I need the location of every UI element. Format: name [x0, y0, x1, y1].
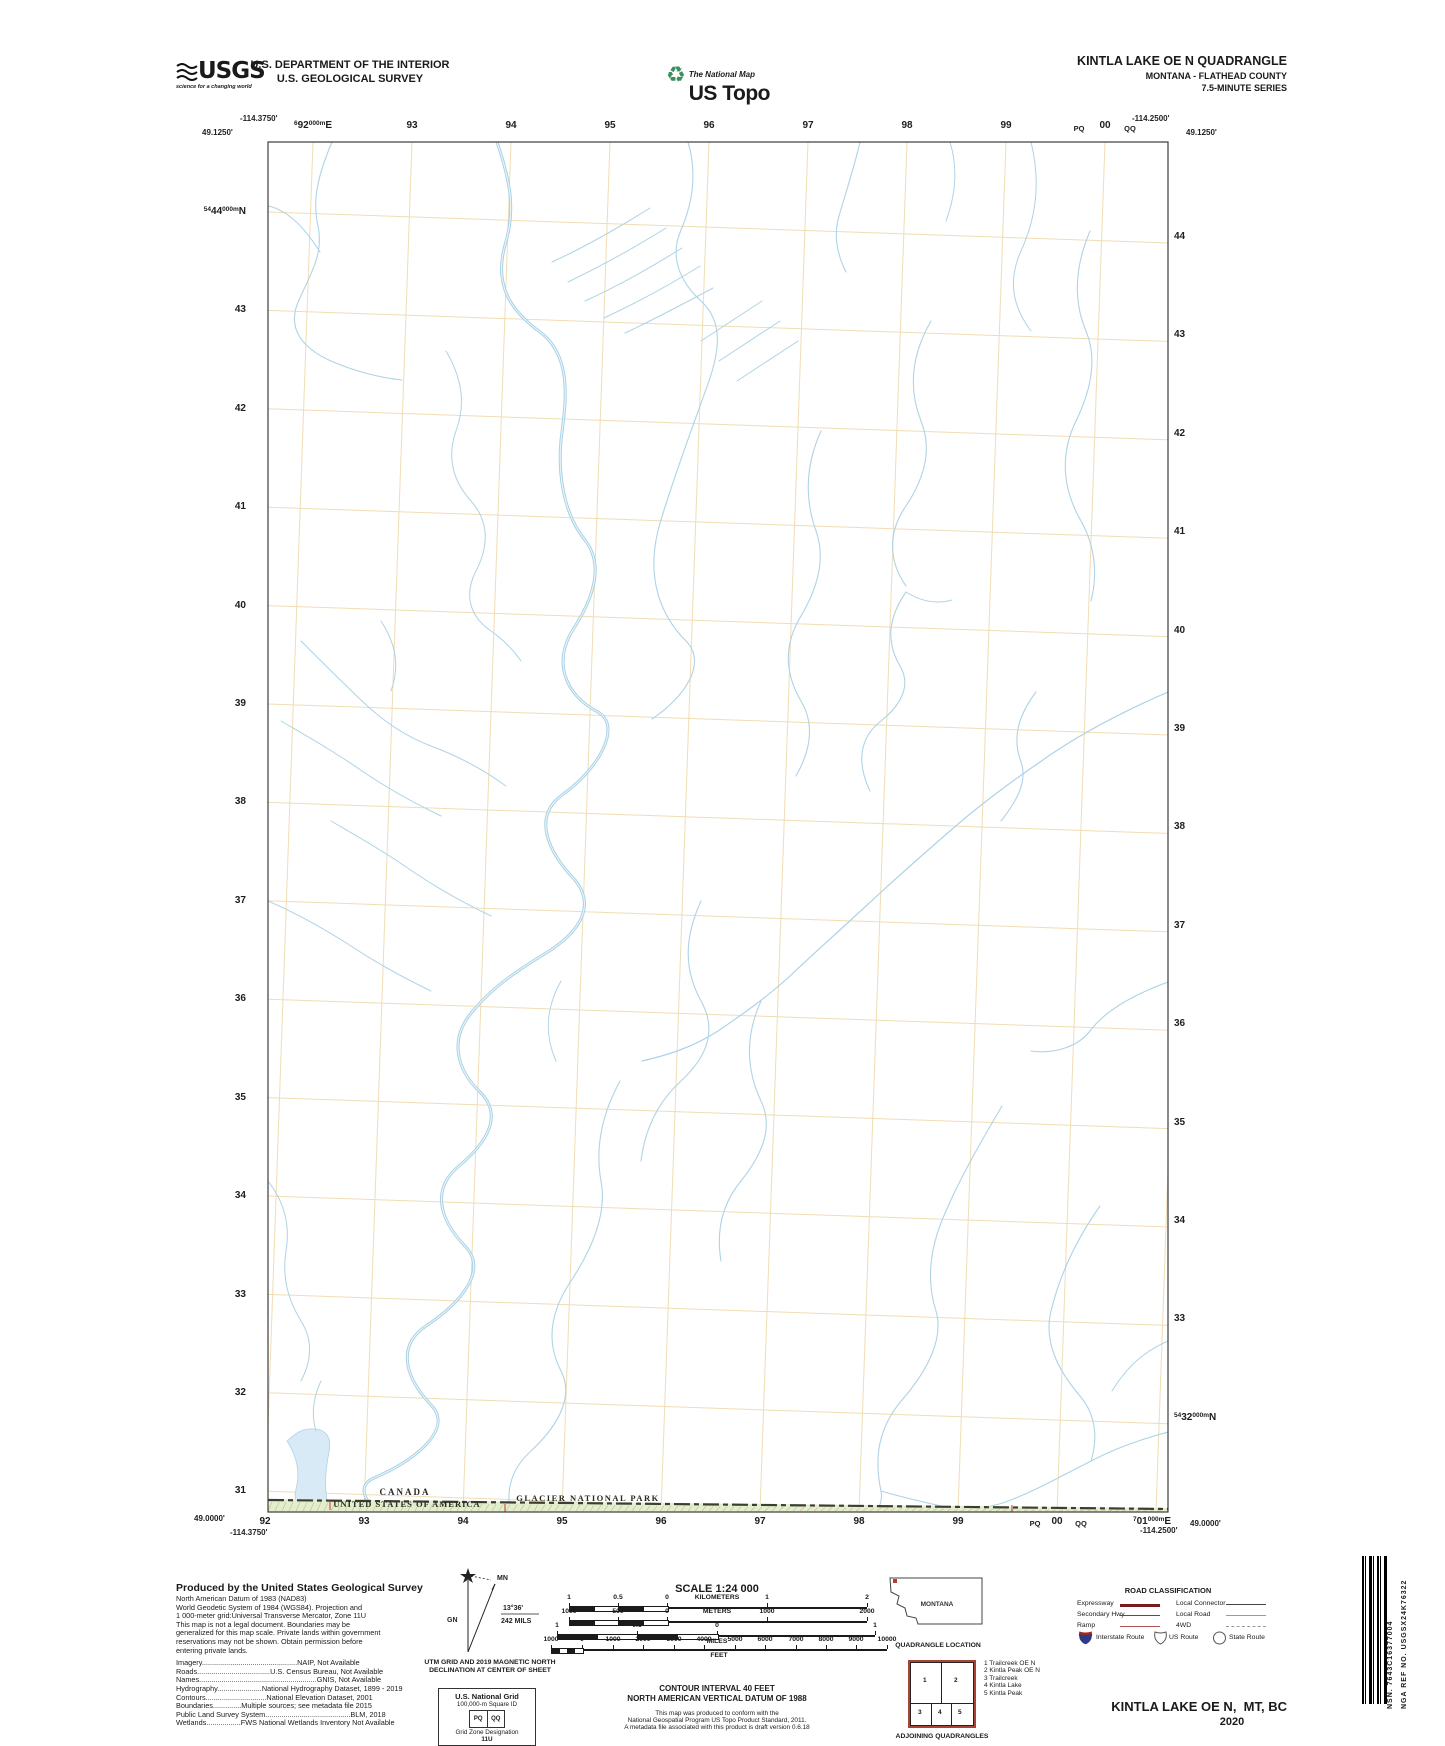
- scale-tick: [875, 1631, 876, 1635]
- svg-text:242 MILS: 242 MILS: [501, 1618, 532, 1625]
- grid-label-bottom: 94: [457, 1516, 468, 1527]
- scale-tick-label: 6000: [757, 1636, 772, 1643]
- scale-tick-label: 0.5: [632, 1622, 641, 1629]
- usng-box: U.S. National Grid 100,000-m Square ID P…: [438, 1688, 536, 1746]
- utm-grid-line-h: [268, 802, 1168, 833]
- utm-grid-line-h: [268, 901, 1168, 932]
- grid-label-right: 39: [1174, 723, 1185, 734]
- stream-path: [719, 1001, 766, 1261]
- stream-path: [1031, 982, 1168, 1052]
- credit-line: Wetlands.................FWS National We…: [176, 1719, 441, 1728]
- product-note-line: This map was produced to conform with th…: [655, 1710, 779, 1717]
- utm-grid-line-v: [364, 142, 412, 1512]
- boundary-monument-number: 6: [260, 1503, 265, 1513]
- road-line-sample: [1226, 1604, 1266, 1605]
- corner-bl-lon: -114.3750': [230, 1528, 268, 1537]
- utm-grid-line-v: [562, 142, 610, 1512]
- scale-bar-segment: [643, 1620, 670, 1626]
- utm-grid-line-h: [268, 310, 1168, 341]
- interstate-shield-icon: [1078, 1630, 1093, 1645]
- scale-tick-label: 0: [665, 1594, 669, 1601]
- route-type-label: Interstate Route: [1096, 1634, 1144, 1641]
- stream-path: [906, 592, 952, 602]
- scale-tick: [826, 1645, 827, 1649]
- utm-grid-line-v: [661, 142, 709, 1512]
- declination-caption1: UTM GRID AND 2019 MAGNETIC NORTH: [424, 1659, 555, 1666]
- stream-path: [552, 208, 650, 262]
- corner-tr-lon: -114.2500': [1132, 114, 1170, 123]
- utm-grid-line-v: [1057, 142, 1105, 1512]
- utm-grid-line-h: [268, 1098, 1168, 1129]
- product-note-line: A metadata file associated with this pro…: [624, 1724, 809, 1731]
- adjoining-quads-diagram: 1 2 3 4 5: [908, 1660, 976, 1728]
- stream-path: [701, 301, 762, 341]
- usng-square-qq: QQ: [488, 1711, 505, 1727]
- adjoining-cell-3: 3: [918, 1709, 922, 1716]
- stream-path: [836, 142, 860, 272]
- glacier-national-park-label: GLACIER NATIONAL PARK: [516, 1493, 660, 1503]
- stream-path: [893, 321, 932, 586]
- state-locator-map: MONTANA: [885, 1566, 991, 1634]
- adjoining-quad-name: 5 Kintla Peak: [984, 1690, 1040, 1697]
- road-type-label: Ramp: [1077, 1622, 1095, 1629]
- grid-label-bottom: 98: [853, 1516, 864, 1527]
- stream-path: [1049, 1206, 1100, 1461]
- scale-tick: [667, 1617, 668, 1621]
- scale-tick-label: 10000: [878, 1636, 897, 1643]
- quadrangle-location-caption: QUADRANGLE LOCATION: [895, 1642, 981, 1649]
- scale-tick-label: 1000: [759, 1608, 774, 1615]
- scale-tick-label: 500: [612, 1608, 623, 1615]
- grid-label-top: 96: [703, 120, 714, 131]
- scale-tick: [569, 1603, 570, 1607]
- grid-label-left: 41: [235, 501, 246, 512]
- grid-label-left: 31: [235, 1485, 246, 1496]
- stream-path: [446, 351, 521, 661]
- scale-tick: [613, 1645, 614, 1649]
- grid-label-right: 41: [1174, 526, 1185, 537]
- scale-tick: [557, 1631, 558, 1635]
- usng-gzd-label: Grid Zone Designation: [439, 1729, 535, 1736]
- grid-label-left: 38: [235, 796, 246, 807]
- grid-label-right: 43: [1174, 329, 1185, 340]
- corner-br-lat: 49.0000': [1190, 1519, 1221, 1528]
- scale-tick-label: 0: [715, 1622, 719, 1629]
- scale-tick: [735, 1645, 736, 1649]
- scale-tick: [667, 1603, 668, 1607]
- road-line-sample: [1120, 1626, 1160, 1627]
- svg-text:GN: GN: [447, 1617, 458, 1624]
- scale-tick: [867, 1617, 868, 1621]
- grid-label-right: 5432000mN: [1174, 1412, 1216, 1423]
- scale-unit-label: FEET: [710, 1652, 727, 1659]
- road-line-sample: [1120, 1604, 1160, 1607]
- scale-tick-label: 8000: [818, 1636, 833, 1643]
- svg-text:13°36': 13°36': [503, 1604, 523, 1612]
- stream-path: [364, 142, 608, 1513]
- usng-square-diagram: PQ QQ: [469, 1710, 505, 1728]
- scale-tick-label: 1: [873, 1622, 877, 1629]
- scale-tick-label: 1000: [605, 1636, 620, 1643]
- declination-diagram: MN GN 13°36' 242 MILS: [435, 1560, 555, 1656]
- scale-tick: [856, 1645, 857, 1649]
- grid-label-right: 34: [1174, 1215, 1185, 1226]
- scale-tick-label: 1000: [543, 1636, 558, 1643]
- grid-label-top: 98: [901, 120, 912, 131]
- utm-grid-line-h: [268, 1393, 1168, 1424]
- scale-tick: [796, 1645, 797, 1649]
- grid-label-top: PQ: [1074, 124, 1085, 133]
- corner-tl-lon: -114.3750': [240, 114, 278, 123]
- nga-ref-number: NGA REF NO. USGSX24K76322: [1401, 1580, 1408, 1709]
- grid-label-left: 37: [235, 895, 246, 906]
- grid-label-left: 33: [235, 1289, 246, 1300]
- usgs-topo-sheet: { "header": { "usgs": {"brand": "USGS", …: [0, 0, 1445, 1746]
- credits-lines: North American Datum of 1983 (NAD83)Worl…: [176, 1595, 441, 1728]
- grid-label-left: 42: [235, 403, 246, 414]
- road-type-label: Expressway: [1077, 1600, 1114, 1607]
- scale-tick: [704, 1645, 705, 1649]
- scale-tick: [674, 1645, 675, 1649]
- vertical-datum: NORTH AMERICAN VERTICAL DATUM OF 1988: [627, 1694, 806, 1703]
- product-note-line: National Geospatial Program US Topo Prod…: [628, 1717, 807, 1724]
- grid-label-bottom: 701000mE: [1133, 1516, 1171, 1527]
- stream-path: [625, 288, 713, 333]
- adjoining-quad-name: 3 Trailcreek: [984, 1675, 1040, 1682]
- scale-tick: [887, 1645, 888, 1649]
- scale-tick-label: 1: [765, 1594, 769, 1601]
- scale-bar-segment: [594, 1620, 621, 1626]
- grid-label-right: 37: [1174, 920, 1185, 931]
- grid-label-left: 32: [235, 1387, 246, 1398]
- grid-label-bottom: 95: [556, 1516, 567, 1527]
- corner-bl-lat: 49.0000': [194, 1514, 225, 1523]
- scale-tick-label: 4000: [696, 1636, 711, 1643]
- stream-path: [294, 142, 402, 380]
- road-type-label: Local Connector: [1176, 1600, 1226, 1607]
- scale-tick: [767, 1617, 768, 1621]
- scale-tick-label: 1: [555, 1622, 559, 1629]
- grid-label-top: 692000mE: [294, 120, 332, 131]
- stream-path: [568, 228, 666, 282]
- grid-label-top: QQ: [1124, 124, 1136, 133]
- grid-label-top: 97: [802, 120, 813, 131]
- grid-label-bottom: 00: [1051, 1516, 1062, 1527]
- stream-path: [652, 142, 717, 719]
- scale-tick: [637, 1631, 638, 1635]
- road-line-sample: [1226, 1626, 1266, 1627]
- stream-path: [364, 142, 608, 1513]
- stream-path: [548, 981, 561, 1061]
- stream-path: [876, 1106, 1002, 1513]
- svg-text:MONTANA: MONTANA: [921, 1601, 954, 1608]
- adjoining-cell-1: 1: [923, 1677, 927, 1684]
- utm-grid-line-v: [265, 142, 313, 1512]
- grid-label-right: 38: [1174, 821, 1185, 832]
- utm-grid-line-v: [859, 142, 907, 1512]
- scale-tick-label: 3000: [666, 1636, 681, 1643]
- scale-tick-label: 7000: [788, 1636, 803, 1643]
- road-classification-title: ROAD CLASSIFICATION: [1125, 1586, 1212, 1595]
- utm-grid-line-h: [268, 1294, 1168, 1325]
- scale-tick-label: 0.5: [613, 1594, 622, 1601]
- map-neatline: [268, 142, 1168, 1512]
- credit-line: entering private lands.: [176, 1647, 441, 1656]
- grid-label-bottom: 96: [655, 1516, 666, 1527]
- scale-tick: [618, 1603, 619, 1607]
- grid-label-bottom: 92: [259, 1516, 270, 1527]
- scale-tick-label: 2000: [859, 1608, 874, 1615]
- usng-subtitle: 100,000-m Square ID: [439, 1701, 535, 1708]
- stream-path: [1112, 1341, 1168, 1391]
- scale-tick: [717, 1631, 718, 1635]
- grid-label-left: 5444000mN: [204, 206, 246, 217]
- grid-label-right: 35: [1174, 1117, 1185, 1128]
- scale-tick: [867, 1603, 868, 1607]
- utm-grid-line-h: [268, 999, 1168, 1030]
- utm-grid-line-h: [268, 606, 1168, 637]
- grid-label-right: 40: [1174, 625, 1185, 636]
- grid-label-top: 94: [505, 120, 516, 131]
- grid-label-top: 00: [1099, 120, 1110, 131]
- road-type-label: Local Road: [1176, 1611, 1210, 1618]
- stream-path: [788, 431, 821, 776]
- stream-path: [862, 592, 906, 791]
- grid-label-left: 39: [235, 698, 246, 709]
- grid-label-left: 40: [235, 600, 246, 611]
- stream-path: [301, 641, 506, 786]
- grid-label-bottom: 93: [358, 1516, 369, 1527]
- adjoining-cell-4: 4: [938, 1709, 942, 1716]
- adjoining-quad-name: 2 Kintla Peak OE N: [984, 1667, 1040, 1674]
- scale-tick-label: 2: [865, 1594, 869, 1601]
- scale-bar-segment: [569, 1620, 596, 1626]
- utm-grid-line-v: [463, 142, 511, 1512]
- scale-tick: [765, 1645, 766, 1649]
- svg-text:MN: MN: [497, 1575, 508, 1582]
- declination-caption2: DECLINATION AT CENTER OF SHEET: [429, 1667, 551, 1674]
- adjoining-cell-2: 2: [954, 1677, 958, 1684]
- stream-path: [585, 248, 682, 301]
- stream-path: [1065, 231, 1094, 601]
- utm-grid-line-v: [760, 142, 808, 1512]
- quad-location-marker: [893, 1579, 897, 1583]
- usng-square-pq: PQ: [470, 1711, 488, 1727]
- usng-gzd-value: 11U: [439, 1736, 535, 1743]
- grid-label-right: 44: [1174, 231, 1185, 242]
- grid-label-left: 35: [235, 1092, 246, 1103]
- utm-grid-line-h: [268, 507, 1168, 538]
- scale-tick: [767, 1603, 768, 1607]
- stream-path: [604, 266, 700, 318]
- grid-label-right: 33: [1174, 1313, 1185, 1324]
- grid-label-bottom: 99: [952, 1516, 963, 1527]
- scale-unit-label: METERS: [703, 1608, 731, 1615]
- stream-path: [281, 721, 441, 816]
- grid-label-bottom: PQ: [1030, 1519, 1041, 1528]
- grid-label-left: 34: [235, 1190, 246, 1201]
- nsn-number: NSN. 7643C16377004: [1387, 1621, 1394, 1709]
- route-type-label: US Route: [1169, 1634, 1198, 1641]
- road-type-label: 4WD: [1176, 1622, 1191, 1629]
- stream-path: [331, 821, 491, 916]
- stream-path: [737, 341, 798, 381]
- utm-grid-line-h: [268, 1196, 1168, 1227]
- scale-tick-label: 2000: [635, 1636, 650, 1643]
- road-line-sample: [1226, 1615, 1266, 1616]
- scale-tick: [551, 1645, 552, 1649]
- route-type-label: State Route: [1229, 1634, 1265, 1641]
- scale-tick-label: 1000: [561, 1608, 576, 1615]
- adjoining-quads-caption: ADJOINING QUADRANGLES: [896, 1733, 989, 1740]
- scale-unit-label: KILOMETERS: [695, 1594, 740, 1601]
- contour-interval: CONTOUR INTERVAL 40 FEET: [659, 1684, 774, 1693]
- scale-tick-label: 0: [580, 1636, 584, 1643]
- scale-tick: [582, 1645, 583, 1649]
- state-shield-icon: [1212, 1630, 1227, 1645]
- grid-label-right: 42: [1174, 428, 1185, 439]
- scale-bar: [551, 1649, 887, 1651]
- grid-label-top: 95: [604, 120, 615, 131]
- production-credits: Produced by the United States Geological…: [176, 1582, 441, 1728]
- scale-tick-label: 1: [567, 1594, 571, 1601]
- corner-tr-lat: 49.1250': [1186, 128, 1217, 137]
- utm-grid-line-h: [268, 704, 1168, 735]
- stream-path: [642, 692, 1168, 1061]
- grid-label-bottom: 97: [754, 1516, 765, 1527]
- stream-path: [268, 1181, 310, 1381]
- usng-title: U.S. National Grid: [439, 1692, 535, 1701]
- grid-label-left: 36: [235, 993, 246, 1004]
- corner-br-lon: -114.2500': [1140, 1526, 1178, 1535]
- grid-label-right: 36: [1174, 1018, 1185, 1029]
- grid-label-left: 43: [235, 304, 246, 315]
- barcode: [1362, 1556, 1388, 1704]
- stream-path: [881, 1432, 1168, 1508]
- stream-path: [1013, 142, 1036, 331]
- canada-label: CANADA: [380, 1487, 431, 1497]
- scale-tick: [569, 1617, 570, 1621]
- scale-tick: [643, 1645, 644, 1649]
- us-shield-icon: [1153, 1630, 1168, 1645]
- road-type-label: Secondary Hwy: [1077, 1611, 1125, 1618]
- stream-path: [946, 142, 955, 221]
- map-canvas: 6: [0, 0, 1445, 1746]
- corner-tl-lat: 49.1250': [202, 128, 233, 137]
- stream-path: [1001, 692, 1036, 821]
- scale-tick-label: 5000: [727, 1636, 742, 1643]
- adjoining-quad-name: 1 Trailcreek OE N: [984, 1660, 1040, 1667]
- footer-map-year: 2020: [1220, 1716, 1244, 1728]
- grid-label-bottom: QQ: [1075, 1519, 1087, 1528]
- adjoining-quads-list: 1 Trailcreek OE N2 Kintla Peak OE N3 Tra…: [984, 1660, 1040, 1697]
- usa-label: UNITED STATES OF AMERICA: [333, 1499, 480, 1509]
- adjoining-cell-5: 5: [958, 1709, 962, 1716]
- scale-tick-label: 9000: [848, 1636, 863, 1643]
- utm-grid-line-h: [268, 409, 1168, 440]
- scale-bar-segment: [557, 1634, 599, 1640]
- scale-tick-label: 0: [665, 1608, 669, 1615]
- grid-label-top: 93: [406, 120, 417, 131]
- scale-tick: [618, 1617, 619, 1621]
- footer-map-title: KINTLA LAKE OE N, MT, BC: [1111, 1699, 1287, 1714]
- road-line-sample: [1120, 1615, 1160, 1616]
- stream-path: [313, 1381, 321, 1431]
- adjoining-quad-name: 4 Kintla Lake: [984, 1682, 1040, 1689]
- stream-path: [268, 901, 431, 991]
- grid-label-top: 99: [1000, 120, 1011, 131]
